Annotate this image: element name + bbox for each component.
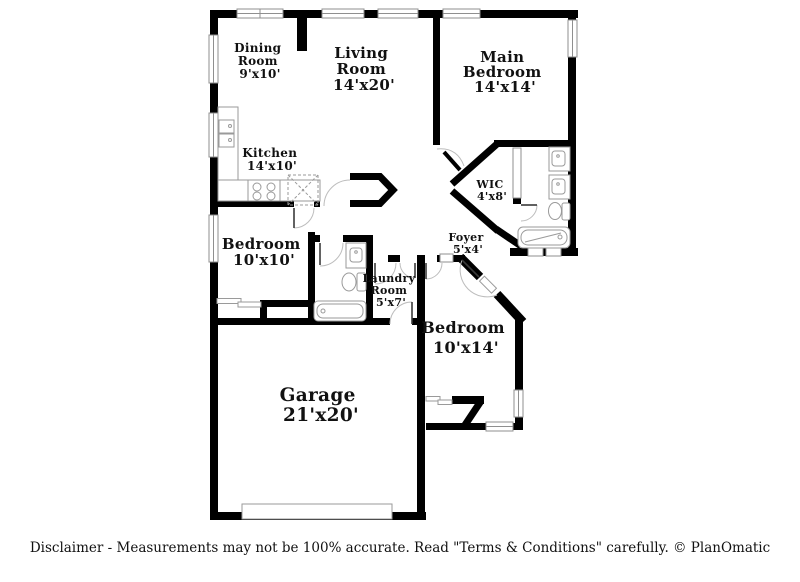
stove (248, 180, 280, 201)
door-arc (324, 180, 350, 206)
pantry-wall (350, 177, 393, 204)
wall-segment (433, 18, 440, 145)
kitchen-sink (219, 120, 234, 147)
room-label-bedroom-10x10: Bedroom 10'x10' (222, 235, 306, 269)
wall-segment (260, 318, 308, 325)
garage-door (242, 504, 392, 519)
wall-segment (218, 318, 260, 325)
wall-segment (260, 300, 308, 307)
bathtub (314, 301, 366, 321)
vanity-sink (549, 147, 570, 171)
room-label-kitchen: Kitchen 14'x10' (242, 146, 302, 173)
wall-segment (417, 255, 425, 520)
wall-segment (308, 235, 320, 242)
disclaimer-text: Disclaimer - Measurements may not be 100… (30, 540, 770, 556)
wic-wall-diag (496, 229, 521, 246)
wall-segment (510, 248, 578, 256)
closet-bypass-door (426, 397, 452, 405)
closet-bypass-door (217, 299, 261, 308)
floor-plan-svg: Dining Room 9'x10' Living Room 14'x20' M… (0, 0, 800, 582)
wall-segment (297, 18, 307, 51)
window (440, 254, 453, 262)
front-door-sill (480, 276, 497, 293)
wall-segment (412, 318, 418, 325)
floor-plan-page: Dining Room 9'x10' Living Room 14'x20' M… (0, 0, 800, 582)
toilet (549, 203, 571, 221)
wic-sliding-door (513, 148, 521, 198)
room-label-foyer: Foyer 5'x4' (448, 231, 487, 256)
wall-segment (373, 318, 390, 325)
room-label-dining: Dining Room 9'x10' (234, 41, 286, 81)
door-arc (320, 243, 343, 266)
room-label-living: Living Room 14'x20' (333, 44, 395, 94)
door-arc (426, 263, 442, 279)
wall-segment (210, 10, 218, 520)
wall-segment (517, 140, 576, 147)
room-label-wic: WIC 4'x8' (475, 178, 507, 203)
room-label-bedroom-10x14: Bedroom 10'x14' (421, 318, 511, 357)
bathtub (518, 227, 570, 248)
door-arc (294, 208, 314, 228)
wall-segment (388, 255, 400, 262)
door-arc (521, 205, 537, 221)
room-label-garage: Garage 21'x20' (280, 385, 363, 426)
vanity-sink (549, 175, 570, 199)
wall-segment (494, 140, 518, 147)
vanity-sink (346, 243, 366, 268)
room-label-main-bedroom: Main Bedroom 14'x14' (463, 48, 547, 96)
